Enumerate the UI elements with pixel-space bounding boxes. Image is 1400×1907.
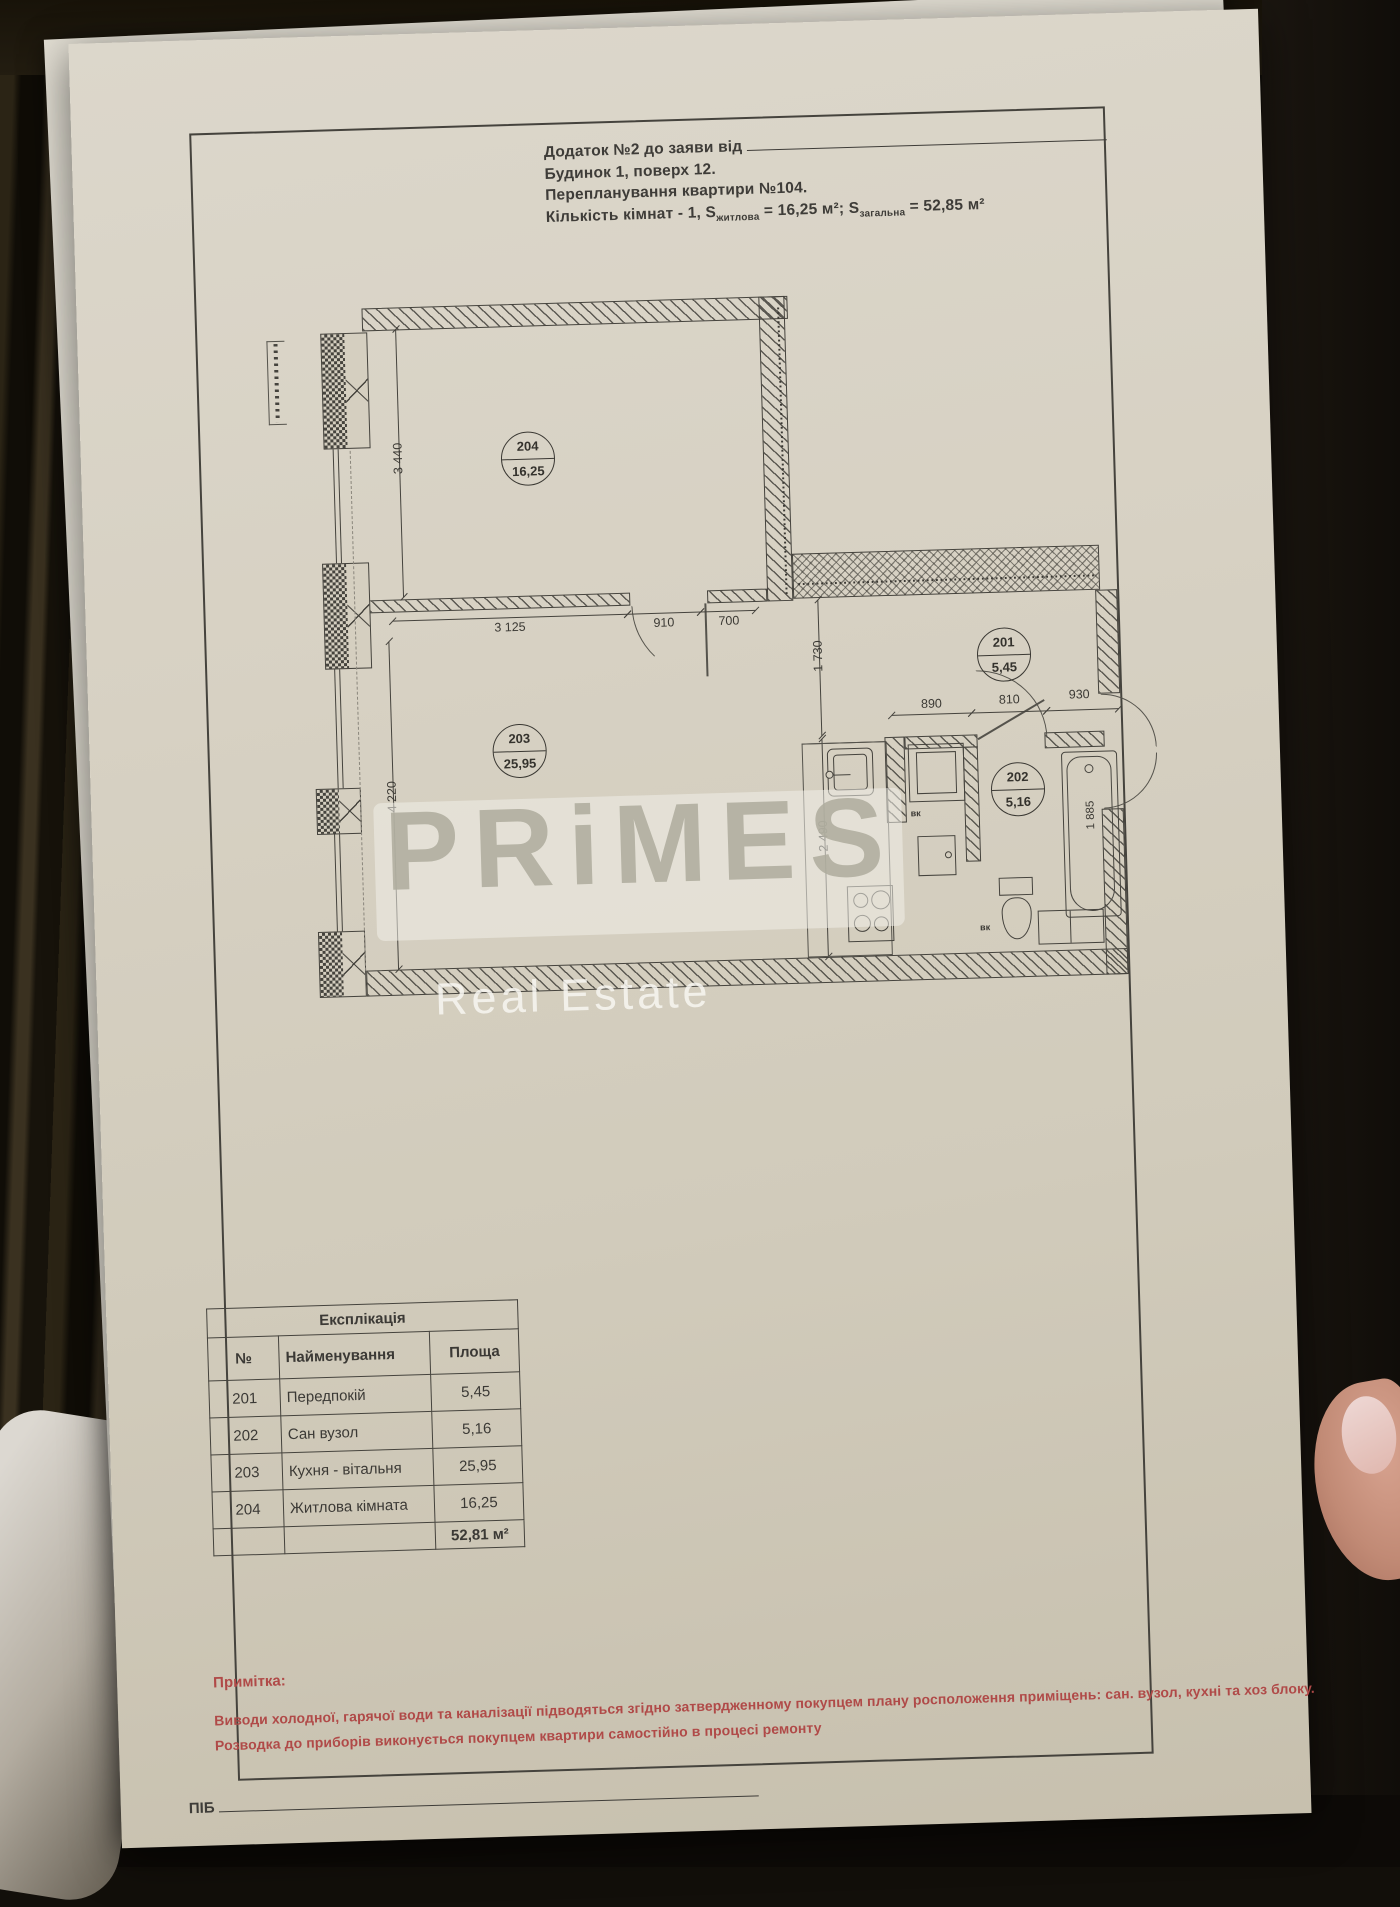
cell-room-no: 204 xyxy=(212,1490,284,1529)
dim-line-890 xyxy=(892,713,972,716)
cell-empty xyxy=(284,1522,436,1553)
cell-room-no: 202 xyxy=(210,1416,282,1455)
dim-label-930: 930 xyxy=(1051,687,1107,703)
cell-room-name: Сан вузол xyxy=(281,1411,433,1452)
water-outlet-label: вк xyxy=(911,808,921,818)
masonry-checker xyxy=(317,789,340,834)
cell-room-no: 201 xyxy=(209,1379,281,1418)
annotation-bracket xyxy=(266,341,286,425)
washer-door xyxy=(916,751,957,794)
wall-top xyxy=(361,296,787,332)
dim-label-3440: 3 440 xyxy=(390,428,406,488)
wall-interior xyxy=(707,589,767,604)
cell-empty xyxy=(213,1527,285,1556)
window-glazing xyxy=(334,669,344,788)
room-label-202: 2025,16 xyxy=(990,761,1046,817)
cell-room-name: Передпокій xyxy=(280,1374,432,1415)
masonry-checker xyxy=(323,564,349,669)
dim-label-890: 890 xyxy=(901,696,961,712)
door-swing-arc xyxy=(1100,692,1157,749)
cell-total-area: 52,81 м² xyxy=(435,1520,525,1550)
watermark-brand: PRiMES xyxy=(383,772,900,916)
dim-label-3125: 3 125 xyxy=(451,618,569,635)
explication-table: Експлікація № Найменування Площа 201 Пер… xyxy=(206,1299,525,1556)
column-header-area: Площа xyxy=(429,1329,519,1375)
cross-brace xyxy=(338,789,361,834)
room-label-204: 20416,25 xyxy=(500,431,556,487)
column-header-name: Найменування xyxy=(278,1331,430,1378)
watermark-subtitle: Real Estate xyxy=(434,965,712,1025)
cell-room-area: 25,95 xyxy=(433,1446,523,1486)
water-outlet-label: вк xyxy=(980,922,990,932)
wall-hall-top xyxy=(792,545,1100,599)
dim-label-810: 810 xyxy=(981,692,1037,708)
balcony-dashed-line xyxy=(350,451,366,971)
toilet-tank xyxy=(999,877,1034,896)
cell-room-no: 203 xyxy=(211,1453,283,1492)
note-title: Примітка: xyxy=(213,1672,286,1691)
document-header: Додаток №2 до заяви від Будинок 1, повер… xyxy=(544,125,1109,234)
cross-brace xyxy=(341,932,365,997)
masonry-checker xyxy=(319,932,343,997)
toilet-bowl xyxy=(1001,897,1032,940)
boiler xyxy=(917,835,956,876)
window-glazing xyxy=(333,449,342,563)
facade-pier xyxy=(320,332,370,449)
room-label-201: 2015,45 xyxy=(976,627,1032,683)
cross-brace xyxy=(344,333,370,448)
cell-room-area: 16,25 xyxy=(434,1483,524,1523)
column-header-no: № xyxy=(207,1336,279,1381)
dim-label-700: 700 xyxy=(701,613,757,629)
wall-bath-top xyxy=(1044,731,1104,749)
wall-interior xyxy=(358,593,630,614)
boiler-valve xyxy=(945,851,952,858)
wall-divider xyxy=(963,746,981,861)
signature-blank-line xyxy=(219,1782,759,1812)
washing-machine xyxy=(908,743,966,803)
facade-pier xyxy=(316,788,362,835)
cell-room-area: 5,16 xyxy=(432,1409,522,1449)
annotation-dots xyxy=(273,344,279,422)
fio-label: ПІБ xyxy=(189,1782,759,1817)
cell-room-area: 5,45 xyxy=(431,1372,521,1412)
cell-room-name: Житлова кімната xyxy=(283,1485,435,1526)
dim-label-1885: 1 885 xyxy=(1084,788,1098,842)
cross-brace xyxy=(346,563,372,668)
facade-pier xyxy=(322,562,372,669)
dim-label-1730: 1 730 xyxy=(810,626,826,686)
dim-label-910: 910 xyxy=(636,615,692,631)
facade-pier xyxy=(318,931,367,998)
masonry-checker xyxy=(321,334,347,449)
paper-sheet: Додаток №2 до заяви від Будинок 1, повер… xyxy=(68,9,1311,1849)
room-label-203: 20325,95 xyxy=(492,723,548,779)
cell-room-name: Кухня - вітальня xyxy=(282,1448,434,1489)
wall-right-exterior xyxy=(1095,589,1120,694)
